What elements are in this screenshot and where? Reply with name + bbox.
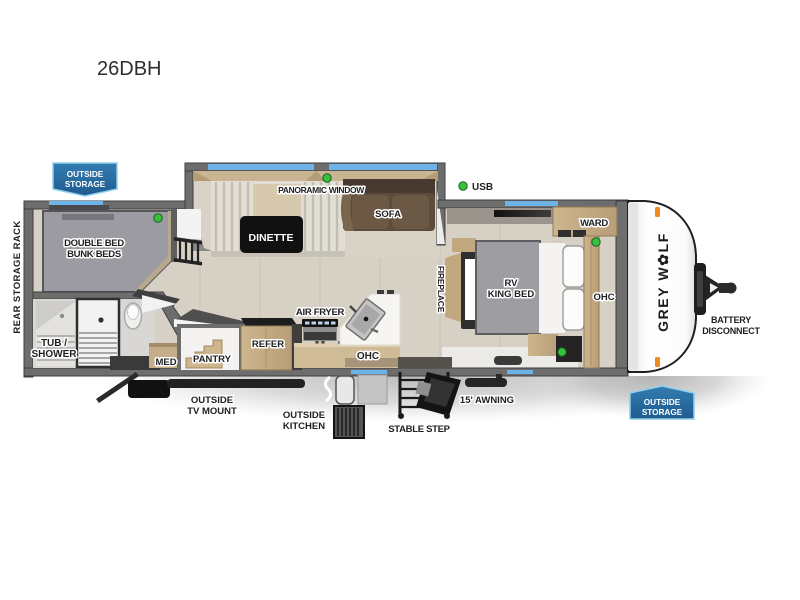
svg-text:GREY W✿LF: GREY W✿LF <box>655 232 671 332</box>
svg-text:KITCHEN: KITCHEN <box>283 421 325 432</box>
svg-text:BUNK BEDS: BUNK BEDS <box>67 249 121 260</box>
svg-text:OHC: OHC <box>357 351 379 362</box>
svg-text:26DBH: 26DBH <box>97 58 161 80</box>
svg-text:OUTSIDE: OUTSIDE <box>283 410 325 421</box>
svg-text:USB: USB <box>472 182 493 193</box>
svg-text:OUTSIDE: OUTSIDE <box>191 395 233 406</box>
svg-text:DINETTE: DINETTE <box>249 232 294 244</box>
svg-text:KING BED: KING BED <box>488 289 535 300</box>
svg-text:OHC: OHC <box>593 292 614 303</box>
svg-text:TUB /: TUB / <box>41 338 67 349</box>
svg-text:DOUBLE BED: DOUBLE BED <box>64 238 124 249</box>
svg-text:SHOWER: SHOWER <box>32 349 78 360</box>
svg-text:DISCONNECT: DISCONNECT <box>702 326 760 336</box>
svg-text:RV: RV <box>504 278 518 289</box>
svg-text:FIREPLACE: FIREPLACE <box>436 266 446 313</box>
svg-text:STORAGE: STORAGE <box>642 408 683 417</box>
svg-text:BATTERY: BATTERY <box>711 315 751 325</box>
svg-text:OUTSIDE: OUTSIDE <box>67 170 104 179</box>
svg-text:AIR FRYER: AIR FRYER <box>296 307 345 318</box>
svg-text:WARD: WARD <box>580 218 608 229</box>
svg-text:OUTSIDE: OUTSIDE <box>644 398 681 407</box>
svg-text:PANTRY: PANTRY <box>193 354 232 365</box>
svg-text:STABLE STEP: STABLE STEP <box>388 424 450 435</box>
svg-text:TV MOUNT: TV MOUNT <box>187 406 237 417</box>
svg-text:STORAGE: STORAGE <box>65 180 106 189</box>
svg-text:REAR STORAGE RACK: REAR STORAGE RACK <box>12 220 23 333</box>
svg-text:REFER: REFER <box>252 339 284 350</box>
svg-text:PANORAMIC WINDOW: PANORAMIC WINDOW <box>278 185 365 195</box>
svg-text:MED: MED <box>155 357 176 368</box>
svg-text:15' AWNING: 15' AWNING <box>460 395 514 406</box>
svg-text:SOFA: SOFA <box>375 209 401 220</box>
